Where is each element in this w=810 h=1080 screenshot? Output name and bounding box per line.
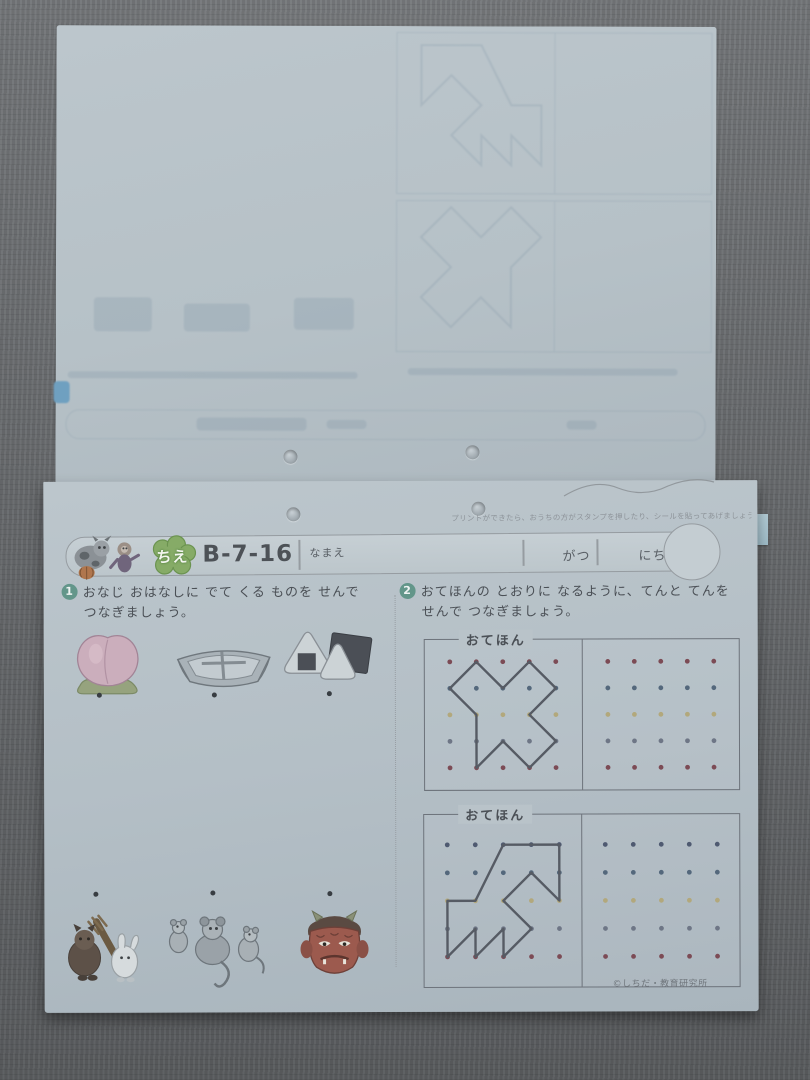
question-1: 1 おなじ おはなしに でて くる ものを せんで つなぎましょう。: [62, 583, 392, 624]
ghost-picture: [294, 298, 354, 330]
question-1-text-line1: おなじ おはなしに でて くる ものを せんで: [83, 585, 360, 601]
question-2-text-line2: せんで つなぎましょう。: [422, 602, 745, 623]
boat-picture: [172, 637, 276, 697]
question-2-number: 2: [400, 583, 416, 599]
connect-dot-top-2[interactable]: [212, 692, 217, 697]
sheet-code: B-7-16: [202, 541, 293, 568]
month-label: がつ: [562, 545, 590, 564]
ghost-text-line: [68, 371, 358, 379]
worksheet-page: プリントができたら、おうちの方がスタンプを押したり、シールを貼ってあげましょう。…: [43, 480, 758, 1013]
upper-worksheet-back: [55, 25, 716, 488]
header-divider: [298, 540, 300, 570]
column-divider: [395, 595, 397, 967]
header-animals-illustration: [68, 531, 148, 582]
dot-grid-answer-2[interactable]: [597, 836, 725, 964]
copyright: ©しちだ・教育研究所: [613, 976, 708, 989]
question-2: 2 おてほんの とおりに なるように、てんと てんを せんで つなぎましょう。: [400, 582, 745, 623]
tanuki-and-rabbit-picture: [58, 910, 150, 990]
connect-dot-bottom-2[interactable]: [210, 890, 215, 895]
stamp-circle: [663, 523, 720, 580]
ghost-picture: [184, 303, 250, 331]
question-1-number: 1: [62, 584, 78, 600]
subject-badge-label: ちえ: [155, 546, 189, 567]
header-divider: [596, 539, 598, 565]
day-label: にち: [638, 545, 666, 564]
question-1-text-line2: つなぎましょう。: [84, 603, 392, 624]
dot-grid-answer-1[interactable]: [600, 653, 722, 775]
dot-grid-example-2: [439, 837, 567, 965]
ghost-picture: [94, 297, 152, 331]
rice-balls-picture: [278, 627, 374, 697]
worksheet-header: ちえ B-7-16 なまえ がつ にち: [65, 531, 717, 577]
connect-dot-bottom-1[interactable]: [93, 892, 98, 897]
ghost-text-line: [408, 368, 678, 376]
connect-dot-top-1[interactable]: [97, 693, 102, 698]
mice-picture: [160, 905, 270, 989]
answer-panel[interactable]: [582, 814, 739, 986]
parent-note: プリントができたら、おうちの方がスタンプを押したり、シールを貼ってあげましょう。…: [451, 510, 751, 524]
ghost-example-box-2: [396, 200, 712, 353]
dot-grid-example-1: [442, 654, 564, 776]
punch-hole: [465, 445, 479, 459]
question-2-text-line1: おてほんの とおりに なるように、てんと てんを: [421, 584, 730, 600]
punch-hole: [286, 507, 300, 521]
name-label: なまえ: [309, 544, 345, 560]
peach-picture: [68, 628, 148, 700]
connect-dot-top-3[interactable]: [327, 691, 332, 696]
example-box-2: おてほん: [423, 813, 740, 988]
connect-dot-bottom-3[interactable]: [327, 891, 332, 896]
subject-badge: ちえ: [148, 535, 196, 577]
punch-hole: [283, 450, 297, 464]
ghost-side-tab: [54, 381, 70, 403]
example-panel: [425, 640, 583, 790]
example-box-1: おてほん: [424, 638, 740, 791]
ghost-header-band: [66, 409, 706, 441]
ghost-example-box-1: [396, 32, 712, 195]
header-divider: [522, 540, 524, 566]
answer-panel[interactable]: [582, 639, 739, 789]
oni-mask-picture: [296, 909, 372, 979]
example-panel: [424, 815, 582, 987]
